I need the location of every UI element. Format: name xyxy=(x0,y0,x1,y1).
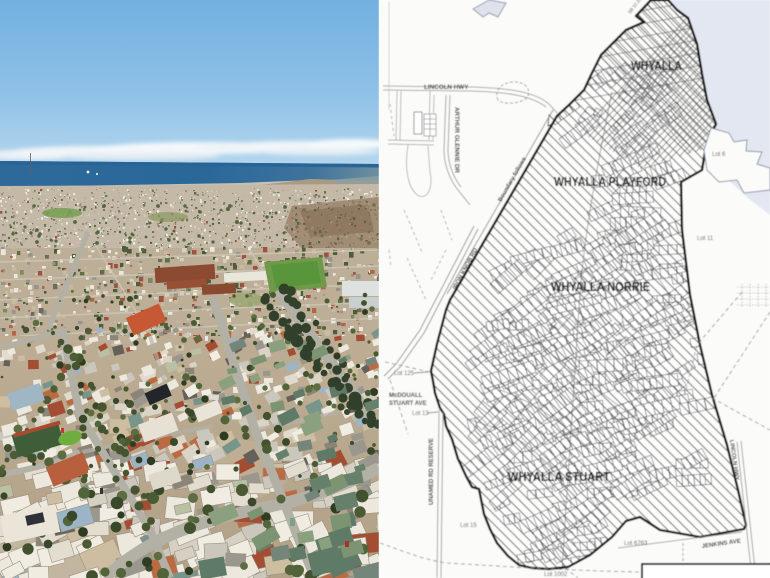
svg-text:Lot 6763: Lot 6763 xyxy=(624,541,648,547)
svg-text:WHYALLA: WHYALLA xyxy=(631,58,682,73)
svg-text:WHYALLA NORRIE: WHYALLA NORRIE xyxy=(551,279,650,294)
svg-text:Lot 6: Lot 6 xyxy=(712,152,726,158)
svg-text:Lot 13: Lot 13 xyxy=(412,411,429,417)
svg-text:McDOUALL: McDOUALL xyxy=(389,393,423,399)
svg-text:WHYALLA STUART: WHYALLA STUART xyxy=(508,469,610,484)
svg-text:LINCOLN HWY: LINCOLN HWY xyxy=(424,84,469,91)
svg-text:Lot 11: Lot 11 xyxy=(697,236,714,242)
svg-text:STUART AVE: STUART AVE xyxy=(389,401,427,407)
svg-text:Lot 1002: Lot 1002 xyxy=(544,572,568,578)
svg-text:ARTHUR GLENNIE DR: ARTHUR GLENNIE DR xyxy=(453,107,460,174)
svg-text:Lot 125: Lot 125 xyxy=(394,371,415,377)
svg-text:Lot 15: Lot 15 xyxy=(460,523,477,529)
svg-text:WHYALLA PLAYFORD: WHYALLA PLAYFORD xyxy=(554,174,666,189)
svg-text:UNAMED RD RESERVE: UNAMED RD RESERVE xyxy=(429,438,435,505)
